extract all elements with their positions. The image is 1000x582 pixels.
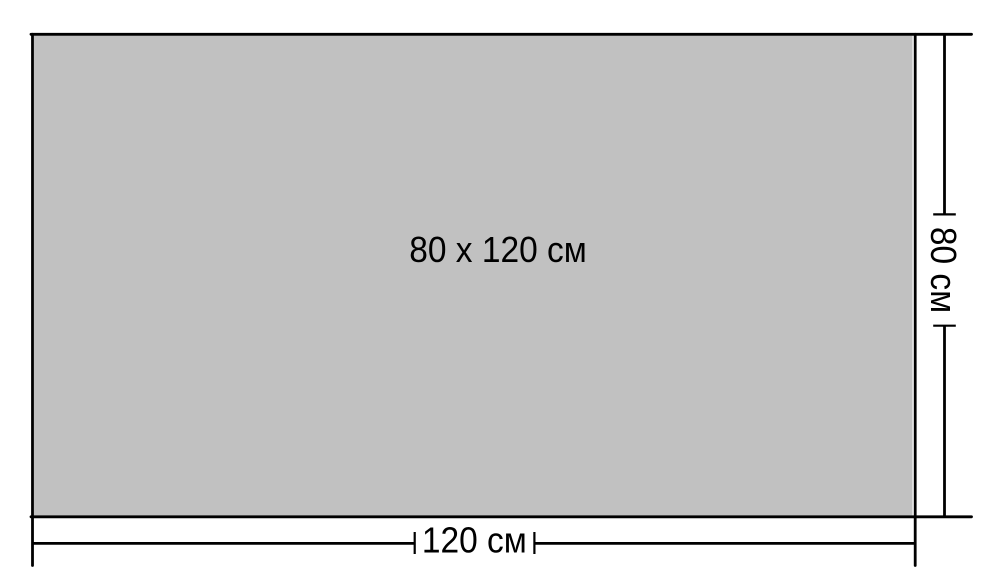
svg-text:80 см: 80 см: [923, 227, 962, 313]
svg-text:120 см: 120 см: [422, 522, 527, 561]
svg-text:80 x 120 см: 80 x 120 см: [409, 231, 587, 270]
